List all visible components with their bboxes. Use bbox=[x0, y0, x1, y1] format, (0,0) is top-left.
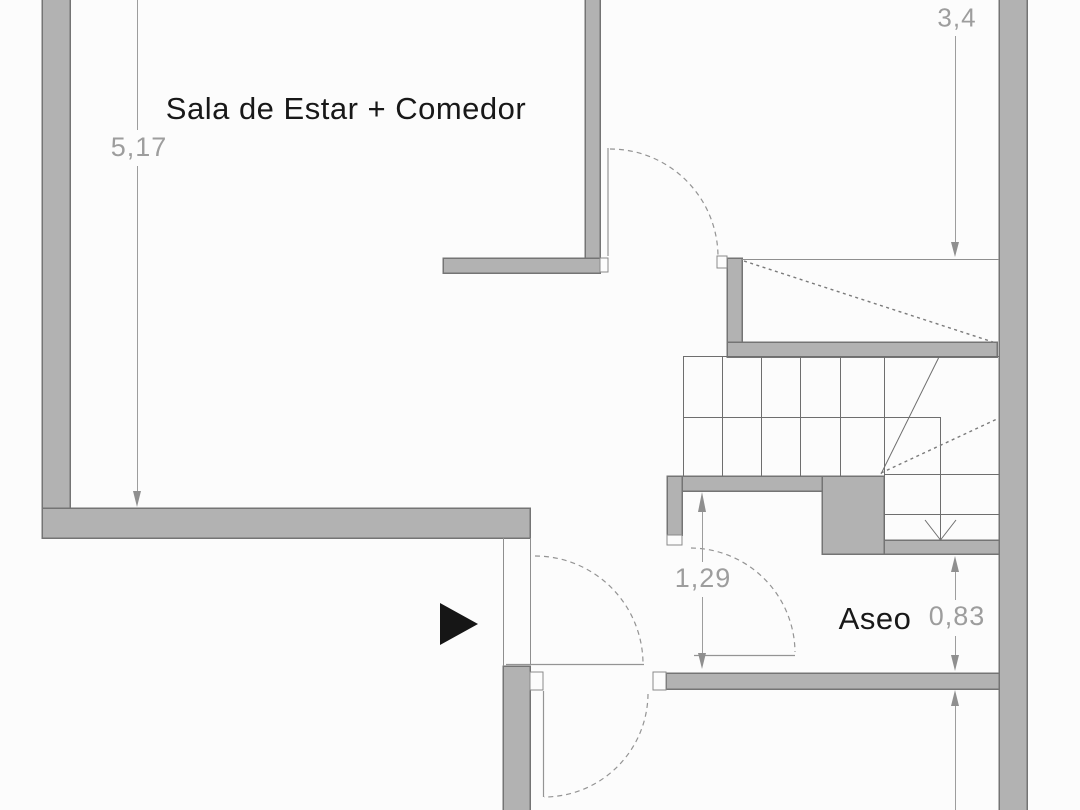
wall-landing-bottom bbox=[727, 342, 997, 357]
doors bbox=[506, 148, 795, 797]
landing-diagonal-dotted bbox=[744, 261, 996, 343]
room-label-bathroom: Aseo bbox=[835, 602, 916, 636]
stair-direction-arrowhead bbox=[925, 520, 941, 540]
wall-right bbox=[999, 0, 1027, 810]
winder-diagonal-dotted bbox=[881, 419, 997, 473]
dimension-living-height: 5,17 bbox=[107, 133, 172, 163]
dim-arrow-down bbox=[951, 655, 959, 671]
stair-direction-arrowhead bbox=[941, 520, 957, 540]
room-label-living-dining: Sala de Estar + Comedor bbox=[162, 92, 530, 126]
dimension-arrowheads bbox=[133, 242, 959, 706]
wall-winder-bottom bbox=[884, 540, 999, 554]
wall-stair-left bbox=[727, 258, 742, 355]
door-jambs bbox=[530, 256, 727, 690]
dim-arrow-down bbox=[951, 242, 959, 257]
dim-arrow-up bbox=[951, 556, 959, 572]
dimension-hall-height: 1,29 bbox=[671, 564, 736, 594]
wall-aseo-bottom bbox=[666, 673, 999, 689]
jamb-top-door-latch bbox=[717, 256, 727, 268]
dim-arrow-up bbox=[698, 492, 706, 512]
jamb-aseo-door-top bbox=[667, 535, 682, 545]
dimension-landing-depth: 3,4 bbox=[933, 4, 980, 33]
dim-arrow-up bbox=[951, 690, 959, 706]
door-swing-upper bbox=[610, 149, 718, 257]
dimension-bathroom-height: 0,83 bbox=[925, 602, 990, 632]
dotted-lines bbox=[744, 261, 997, 473]
wall-living-left bbox=[42, 0, 70, 538]
jamb-aseo-bottom-left bbox=[653, 672, 666, 690]
entrance-arrow-icon bbox=[440, 603, 478, 645]
wall-hall-top bbox=[443, 258, 600, 273]
wall-entry-side bbox=[503, 666, 530, 810]
wall-top-middle bbox=[585, 0, 600, 259]
door-swing-hall-north bbox=[535, 556, 643, 664]
dim-arrow-down bbox=[698, 653, 706, 669]
wall-living-bottom bbox=[42, 508, 530, 538]
wall-aseo-left bbox=[667, 476, 682, 535]
wall-stair-corner-block bbox=[822, 476, 884, 554]
dim-arrow-down bbox=[133, 491, 141, 507]
door-swing-hall-south bbox=[544, 694, 648, 797]
jamb-hall-doors bbox=[530, 672, 543, 690]
floorplan-page: Sala de Estar + Comedor Aseo 5,17 3,4 1,… bbox=[0, 0, 1080, 810]
wall-aseo-top bbox=[667, 476, 822, 491]
stair-winder-diagonal bbox=[881, 357, 939, 474]
jamb-top-door-hinge bbox=[600, 258, 608, 272]
